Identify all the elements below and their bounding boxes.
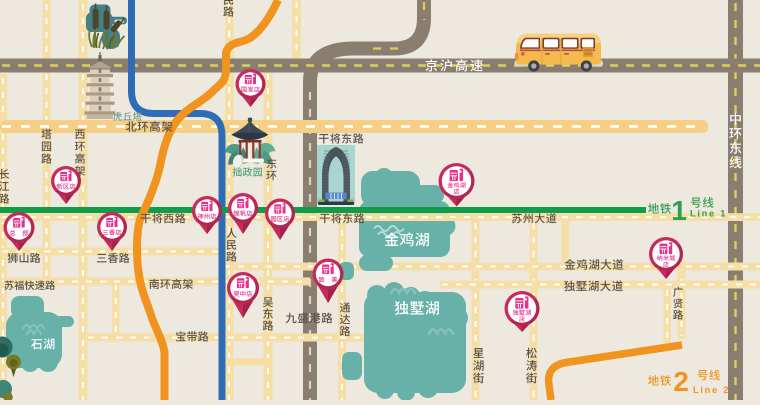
svg-text:1: 1 — [671, 195, 687, 226]
svg-text:2: 2 — [673, 366, 689, 397]
svg-text:Line 1: Line 1 — [690, 209, 727, 219]
svg-text:Line 2: Line 2 — [693, 385, 730, 395]
